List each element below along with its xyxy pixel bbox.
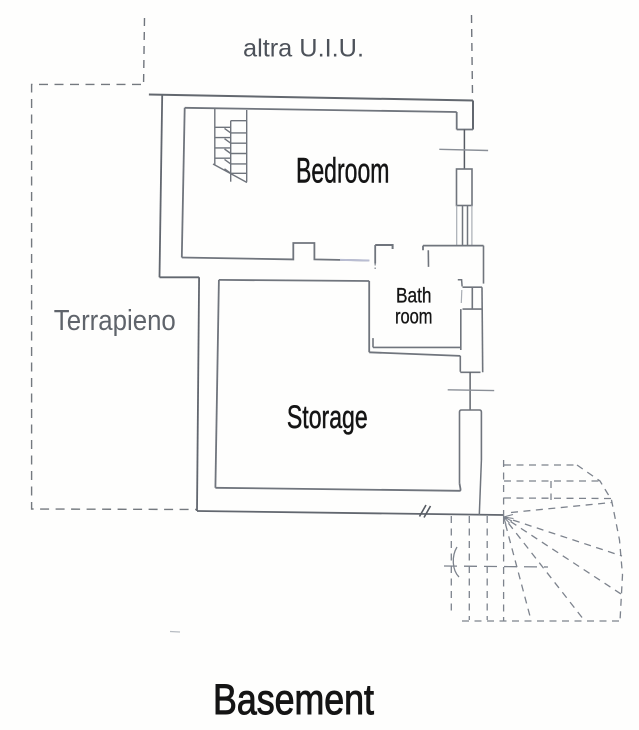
svg-text:room: room [395,305,433,328]
svg-text:Terrapieno: Terrapieno [54,305,176,337]
svg-text:Basement: Basement [213,676,374,724]
svg-text:Bedroom: Bedroom [296,152,390,191]
svg-text:Bath: Bath [396,285,432,308]
svg-text:altra U.I.U.: altra U.I.U. [243,35,364,63]
svg-text:Storage: Storage [287,399,368,435]
